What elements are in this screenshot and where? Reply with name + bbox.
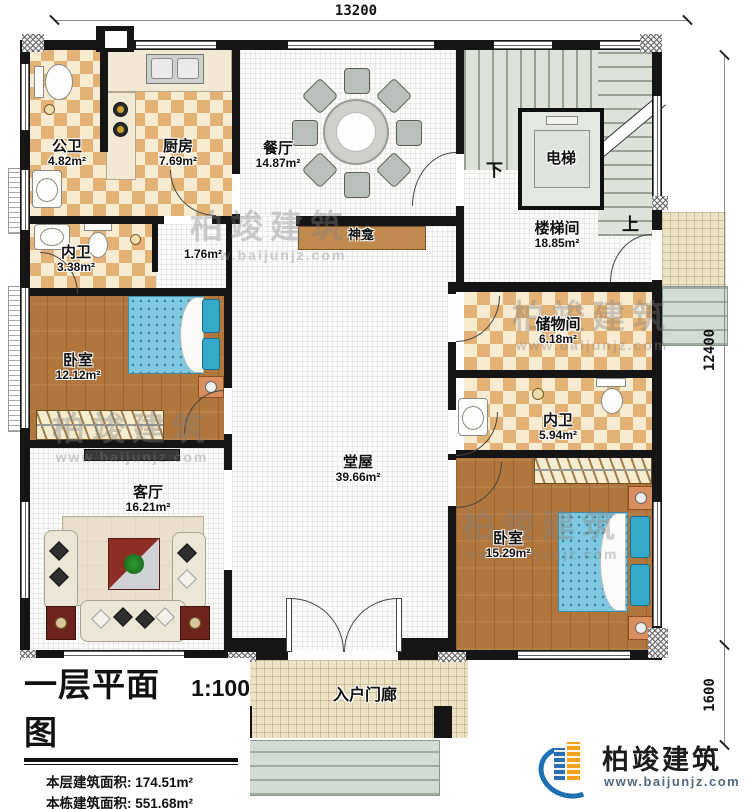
wall-kitchen-dining-pier (232, 214, 240, 224)
window-left-bath (21, 64, 29, 130)
wall-dining-stair-lower (456, 206, 464, 286)
window-top-stair-1 (494, 41, 552, 49)
info-floor-area: 本层建筑面积: 174.51m² (46, 772, 250, 793)
window-left-bedroom1 (21, 288, 29, 428)
wardrobe-1 (36, 410, 164, 440)
entry-door-leaf-left (286, 598, 292, 652)
wall-dining-bottom (296, 216, 458, 226)
kitchen-sink-basin-2 (177, 58, 199, 79)
toilet-tank-1 (34, 66, 44, 98)
dim-right-label: 12400 (702, 320, 718, 380)
lamp-pull (532, 388, 544, 400)
dining-chair-w (292, 120, 318, 146)
stove-burner-2 (113, 122, 128, 137)
title-rule-thin (24, 764, 238, 765)
floor-shrine-niche (156, 224, 232, 296)
bed-2-pillow-2 (630, 564, 650, 606)
wall-dining-stair (456, 40, 464, 154)
dining-chair-s (344, 172, 370, 198)
floor-entry-porch (232, 660, 468, 738)
toilet-bowl-2 (88, 232, 108, 258)
towel-hook-2 (130, 234, 141, 245)
logo-name: 柏竣建筑 (602, 738, 722, 777)
wall-bath-kitchen (100, 50, 108, 152)
window-left-living (21, 502, 29, 598)
logo-url: www.baijunjz.com (604, 774, 740, 789)
hatch-right-porch (652, 196, 668, 210)
plan-scale: 1:100 (191, 675, 250, 702)
toilet-tank-3 (596, 378, 626, 387)
side-table-right-dish (189, 617, 201, 629)
dim-top-label: 13200 (316, 3, 396, 19)
window-right-stair (653, 96, 661, 202)
wall-niche-hall (226, 224, 232, 288)
dim-right-lower-label: 1600 (702, 665, 718, 725)
title-rule-thick (24, 758, 238, 762)
logo-building-blue-icon (554, 748, 565, 782)
toilet-bowl-3 (601, 388, 623, 414)
floor-main-hall (232, 216, 456, 660)
window-top-dining (288, 41, 434, 49)
window-left-bath1 (21, 170, 29, 230)
elevator-door (546, 116, 578, 125)
wall-kitchen-dining (232, 40, 240, 174)
wall-storage-bath (456, 370, 652, 378)
toilet-bowl-1 (45, 64, 73, 100)
dim-line-top (54, 20, 688, 21)
hatch-porch-right (438, 652, 466, 662)
wall-row-216-left (28, 216, 164, 224)
plan-title: 一层平面图 (24, 658, 181, 754)
basin-2 (40, 228, 64, 246)
entry-door-leaf-right (396, 598, 402, 652)
wall-bath1-niche (152, 224, 158, 272)
window-top-kitchen (136, 41, 216, 49)
stair-down-label: 下 (486, 156, 503, 181)
door-gap-bedroom2 (448, 460, 456, 506)
floor-plan: 13200 12400 1600 柏竣建筑 www.baijunjz.com 柏… (0, 0, 750, 809)
wall-stair-bottom (456, 282, 652, 292)
logo-icon (536, 738, 594, 792)
logo-building-orange-icon (567, 742, 580, 782)
porch-pier-right (434, 706, 452, 738)
door-gap-storage (448, 294, 456, 342)
dining-chair-e (396, 120, 422, 146)
wardrobe-2 (534, 456, 652, 484)
dim-line-right (724, 55, 725, 745)
dining-table-top (336, 112, 376, 152)
chimney-flue (104, 30, 128, 49)
side-table-left-dish (55, 617, 67, 629)
nightstand-3-knob (635, 622, 647, 634)
tv-console (84, 449, 180, 461)
kitchen-sink-basin-1 (151, 58, 173, 79)
basin-1 (36, 178, 58, 202)
floor-side-porch (662, 212, 726, 286)
window-top-stair-2 (600, 41, 644, 49)
info-block: 一层平面图 1:100 本层建筑面积: 174.51m² 本栋建筑面积: 551… (24, 658, 250, 806)
entry-pier-left (232, 638, 288, 652)
bed-1-pillow-2 (202, 338, 220, 370)
table-plant (124, 554, 144, 574)
hatch-bottom-right (648, 628, 668, 658)
window-bottom-bedroom2 (518, 651, 630, 659)
wall-bedroom1-living (28, 440, 224, 448)
door-gap-bath2 (448, 410, 456, 454)
brand-logo: 柏竣建筑 www.baijunjz.com (536, 732, 746, 802)
stove-burner-1 (113, 102, 128, 117)
elevator-car (534, 130, 590, 188)
hatch-top-right (640, 34, 662, 52)
towel-hook-1 (44, 104, 55, 115)
bed-1-pillow-1 (202, 299, 220, 333)
window-right-bedroom2 (653, 502, 661, 626)
wall-bath-bedroom2 (456, 450, 652, 458)
hatch-top-left (22, 34, 44, 52)
stair-up-label: 上 (622, 210, 639, 235)
info-building-area: 本栋建筑面积: 551.68m² (46, 793, 250, 809)
bed-2-pillow-1 (630, 516, 650, 558)
entry-steps (246, 740, 440, 796)
door-gap-stair-side (652, 230, 662, 280)
dining-chair-n (344, 68, 370, 94)
opening-living (224, 470, 232, 570)
door-gap-bedroom1 (224, 388, 232, 434)
side-steps (662, 286, 728, 346)
entry-pier-right (398, 638, 450, 652)
shrine-cabinet (298, 226, 426, 250)
nightstand-2-knob (635, 492, 647, 504)
